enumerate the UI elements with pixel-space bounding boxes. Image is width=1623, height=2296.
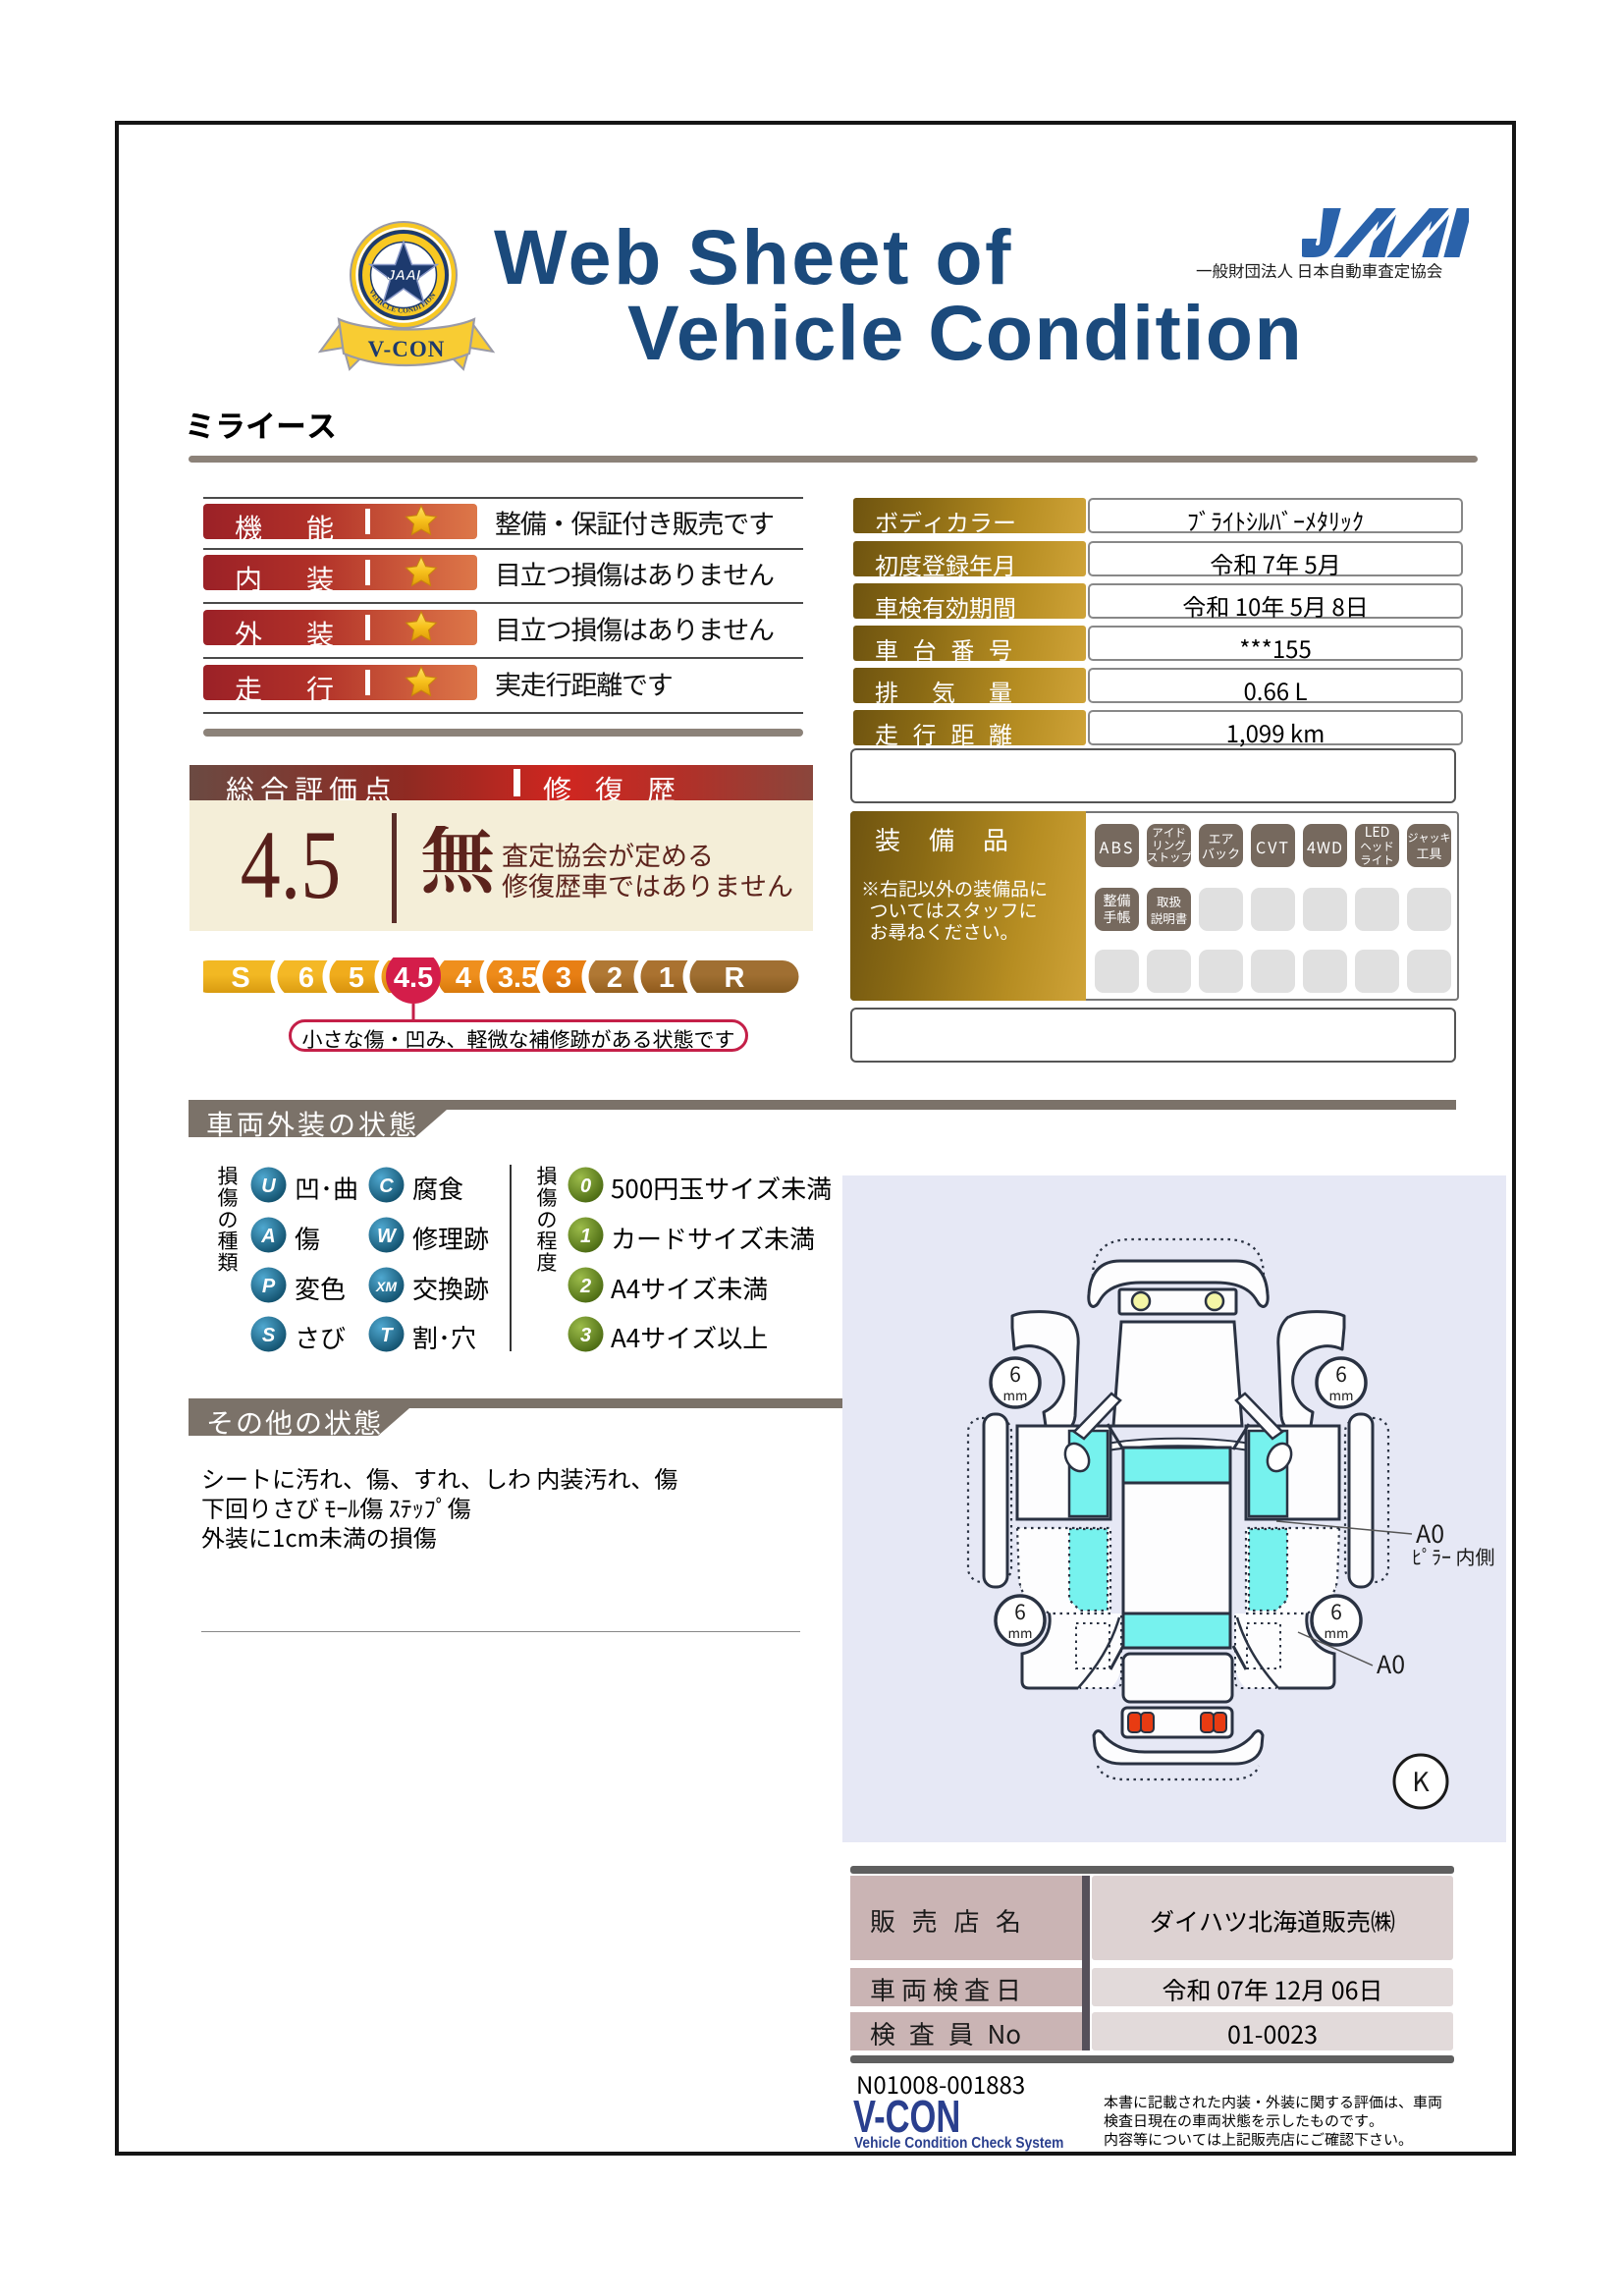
- svg-text:P: P: [262, 1276, 276, 1297]
- svg-text:V-CON: V-CON: [368, 337, 446, 361]
- svg-text:4.5: 4.5: [394, 962, 433, 994]
- svg-text:K: K: [1412, 1761, 1430, 1799]
- svg-text:5: 5: [349, 962, 364, 994]
- svg-text:3: 3: [556, 962, 571, 994]
- svg-text:1: 1: [580, 1226, 591, 1247]
- svg-text:mm: mm: [1002, 1385, 1027, 1404]
- svg-text:JAAI: JAAI: [387, 267, 421, 284]
- svg-text:mm: mm: [1324, 1622, 1348, 1642]
- svg-text:0: 0: [580, 1175, 591, 1197]
- svg-text:6: 6: [298, 962, 314, 994]
- svg-text:U: U: [261, 1175, 276, 1197]
- svg-text:T: T: [380, 1325, 394, 1346]
- svg-text:1: 1: [659, 962, 675, 994]
- svg-text:3: 3: [580, 1325, 591, 1346]
- svg-text:R: R: [725, 962, 745, 994]
- svg-text:3.5: 3.5: [498, 962, 537, 994]
- svg-text:2: 2: [579, 1276, 591, 1297]
- svg-text:S: S: [262, 1325, 276, 1346]
- svg-text:XM: XM: [375, 1279, 397, 1294]
- svg-text:W: W: [377, 1226, 398, 1247]
- svg-text:ﾋﾟﾗｰ 内側: ﾋﾟﾗｰ 内側: [1412, 1542, 1494, 1570]
- svg-text:mm: mm: [1007, 1622, 1032, 1642]
- svg-text:mm: mm: [1328, 1385, 1353, 1404]
- svg-text:A0: A0: [1377, 1646, 1405, 1681]
- svg-text:S: S: [231, 962, 249, 994]
- svg-text:4: 4: [456, 962, 471, 994]
- svg-text:2: 2: [607, 962, 622, 994]
- svg-text:C: C: [379, 1175, 394, 1197]
- svg-text:A: A: [260, 1226, 275, 1247]
